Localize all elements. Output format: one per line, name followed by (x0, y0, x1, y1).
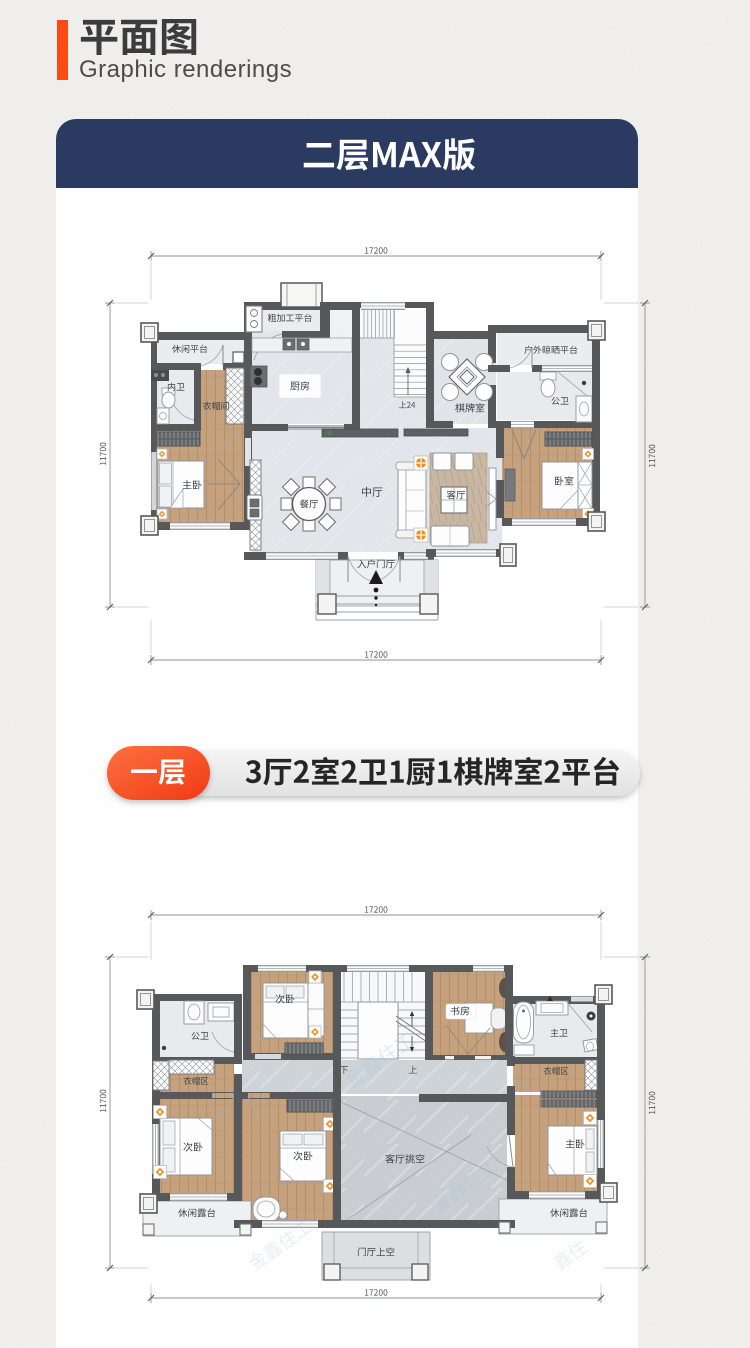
svg-text:Graphic renderings: Graphic renderings (79, 56, 292, 83)
